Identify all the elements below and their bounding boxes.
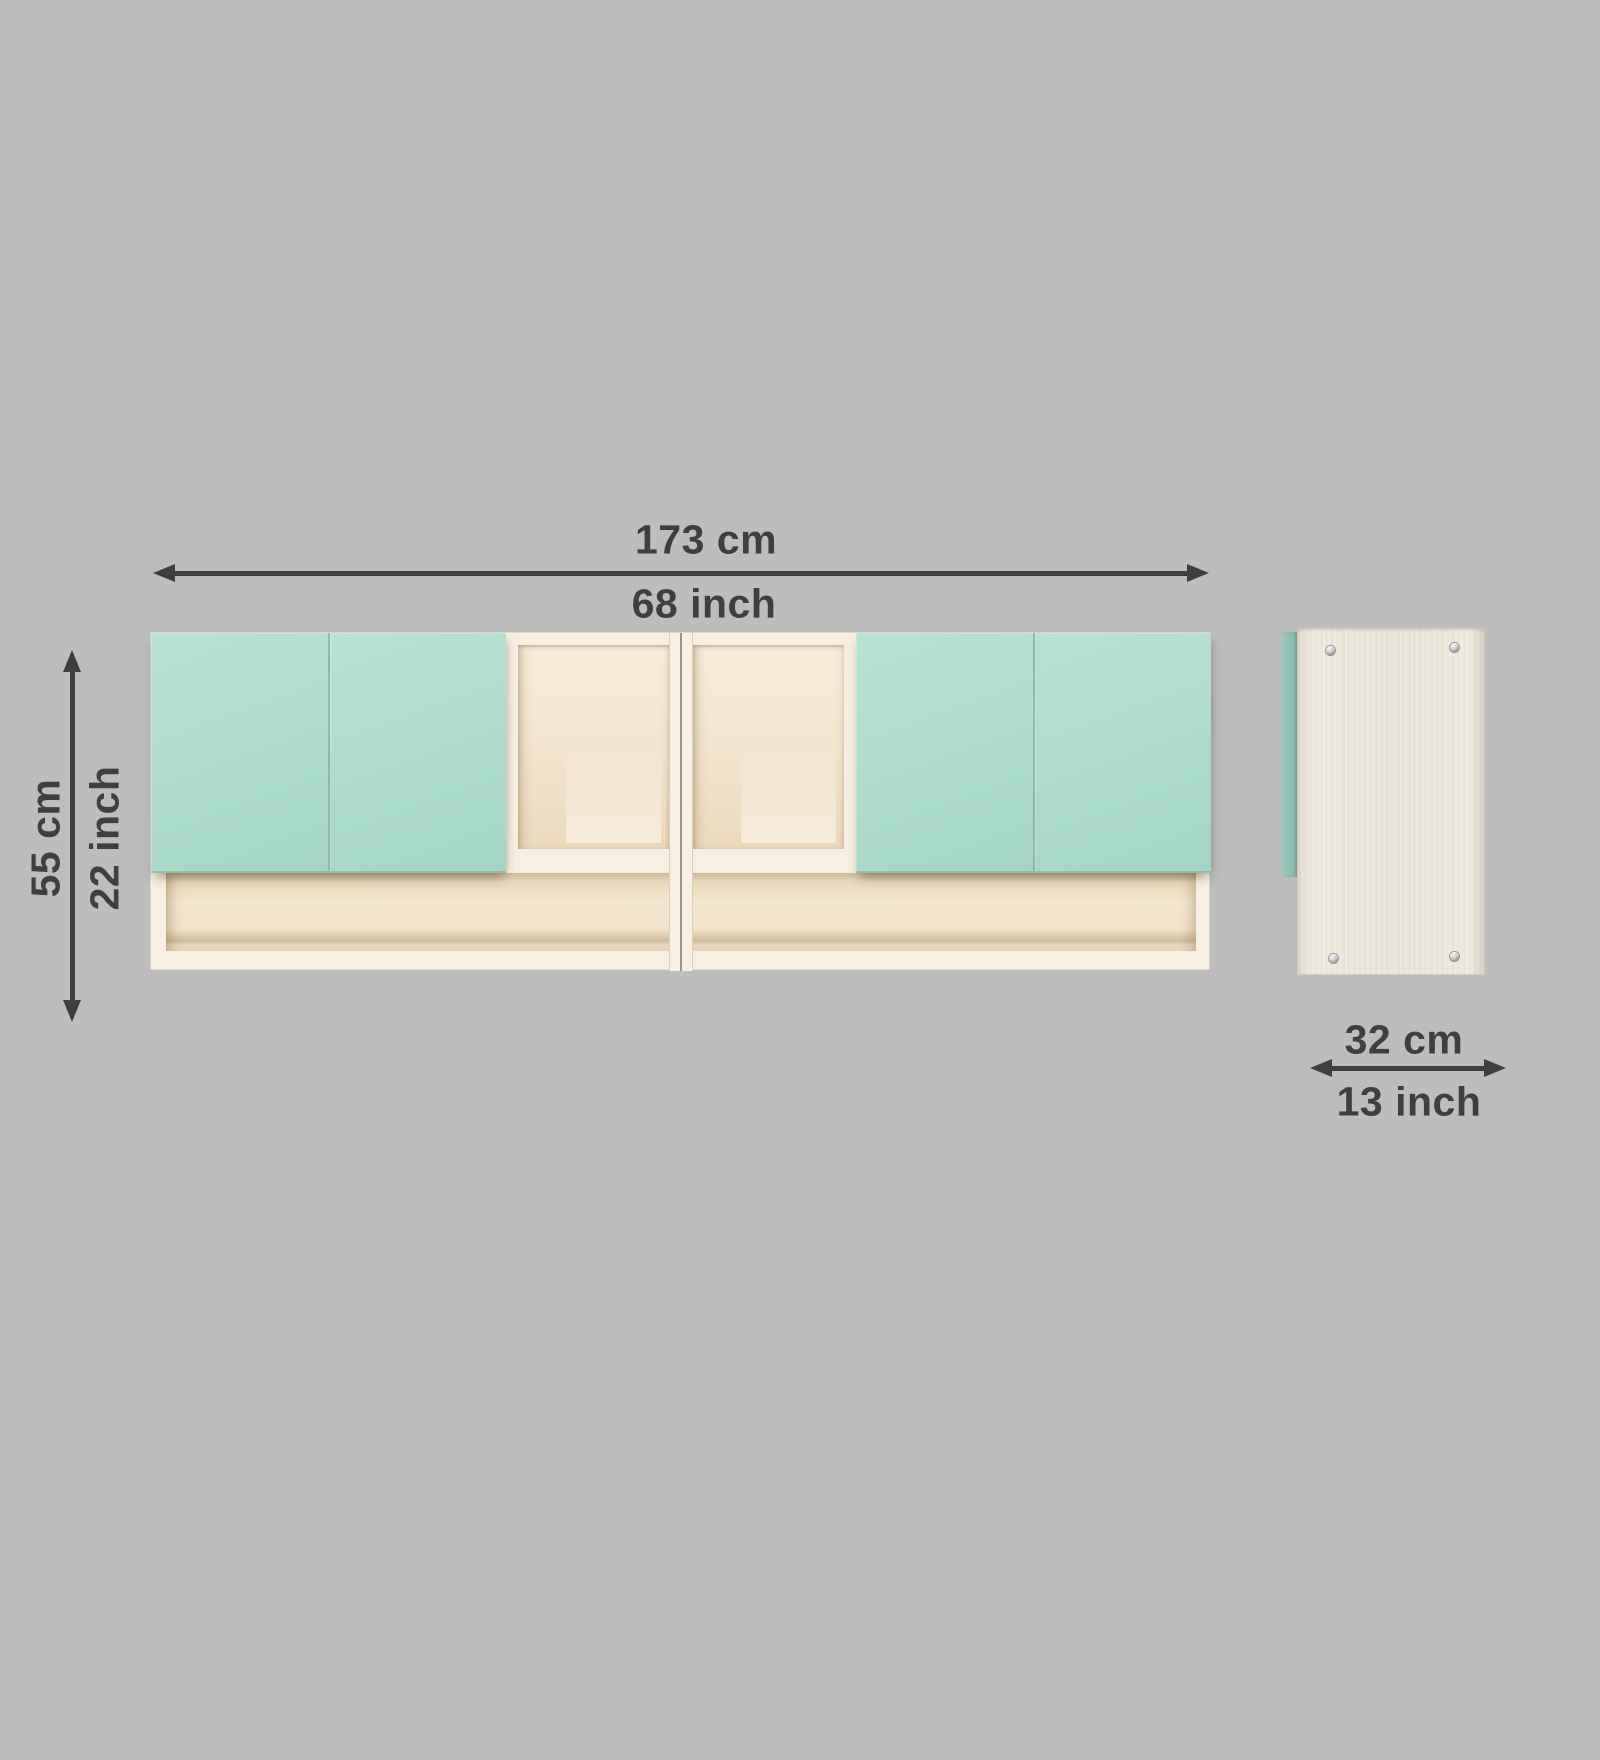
arrow-head-down-icon bbox=[63, 1000, 81, 1022]
arrow-head-right-icon bbox=[1484, 1059, 1506, 1077]
screw-icon bbox=[1450, 952, 1459, 961]
depth-label-cm: 32 cm bbox=[1345, 1020, 1464, 1061]
arrow-line bbox=[169, 571, 1193, 576]
arrow-line bbox=[70, 666, 75, 1006]
door-right-2 bbox=[1035, 633, 1212, 873]
cabinet-front-view bbox=[150, 632, 1210, 970]
screw-icon bbox=[1326, 646, 1335, 655]
right-door-pair bbox=[856, 633, 1211, 873]
depth-dimension-arrow bbox=[1310, 1056, 1506, 1080]
arrow-line bbox=[1326, 1066, 1490, 1071]
width-label-inch: 68 inch bbox=[632, 584, 777, 625]
screw-icon bbox=[1329, 954, 1338, 963]
open-compartment-left bbox=[518, 645, 669, 849]
arrow-head-right-icon bbox=[1187, 564, 1209, 582]
door-right-1 bbox=[856, 633, 1035, 873]
door-left-1 bbox=[151, 633, 330, 873]
width-label-cm: 173 cm bbox=[635, 520, 777, 561]
height-label-inch: 22 inch bbox=[85, 766, 126, 911]
dimension-diagram-canvas: 173 cm 68 inch 55 cm 22 inch bbox=[0, 0, 1600, 1760]
height-dimension-arrow bbox=[60, 650, 84, 1022]
depth-label-inch: 13 inch bbox=[1337, 1082, 1482, 1123]
side-door-edge bbox=[1282, 632, 1298, 877]
door-left-2 bbox=[330, 633, 507, 873]
open-compartment-right bbox=[693, 645, 844, 849]
left-door-pair bbox=[151, 633, 506, 873]
center-divider-panel bbox=[669, 633, 693, 971]
cabinet-side-view bbox=[1282, 626, 1486, 976]
screw-icon bbox=[1450, 643, 1459, 652]
side-wood-panel bbox=[1297, 628, 1485, 975]
